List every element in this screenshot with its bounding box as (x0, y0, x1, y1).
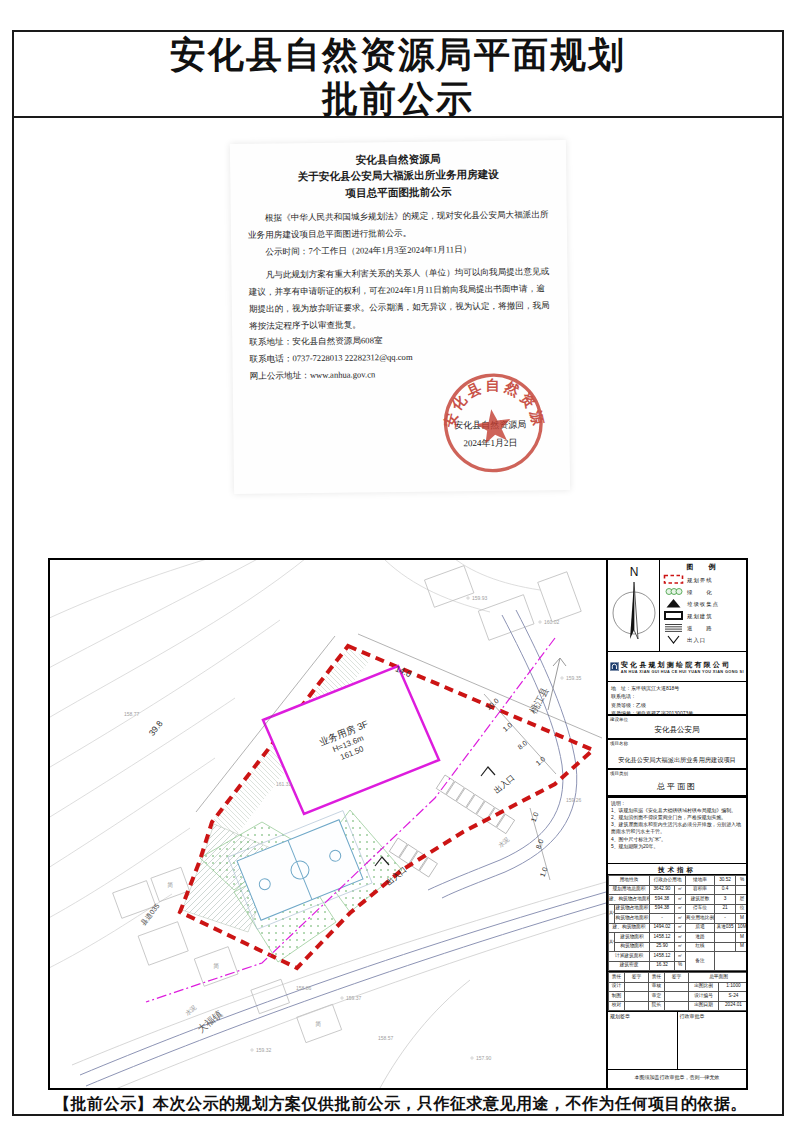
company-logo-icon (610, 657, 619, 676)
tech-cell: 3 (715, 895, 736, 905)
sign-row: 设计 审核 出图比例 1:1000 (609, 982, 747, 992)
page-title-line2: 批前公示 (14, 78, 782, 120)
tech-row: 建、构筑物面积 1494.02 ㎡ 后退 县道035 10M (609, 923, 747, 933)
tech-cell: ㎡ (675, 923, 686, 933)
dim-chain-a3: 8.0 (516, 739, 528, 751)
elev-8: 159.32 (256, 1047, 272, 1053)
tech-cell: M (736, 914, 747, 924)
legend-label-boundary: 规划界线 (687, 577, 713, 584)
tech-cell: M (736, 933, 747, 943)
approval-stamp-box: 行政审批章 (677, 1012, 747, 1069)
shed-2: 简 (213, 963, 219, 969)
elev-5: 159.37 (346, 995, 362, 1001)
owner-value: 安化县公安局 (608, 725, 746, 735)
legend-item-entrance: 出入口 (663, 634, 743, 646)
dim-chain-a2: 1.0 (501, 721, 513, 733)
company-pinyin: AN HUA XIAN GUI HUA CE HUI YUAN YOU XIAN… (621, 670, 744, 674)
type-value: 总平面图 (608, 781, 746, 792)
tech-cell: 30.52 (715, 876, 736, 886)
owner-block: 建设单位 安化县公安局 (608, 716, 746, 740)
entrance-label-1: 出入口 (492, 773, 516, 795)
public-notice-page: { "page": { "title_line1": "安化县自然资源局平面规划… (0, 0, 800, 1131)
sign-cell: 责任 (649, 973, 665, 983)
sign-cell: 责任 (609, 973, 625, 983)
notice-para1: 根据《中华人民共和国城乡规划法》的规定，现对安化县公安局大福派出所业务用房建设项… (248, 206, 550, 243)
site-plan-drawing: 业务用房 3F H=13.6m 161.50 39.8 14.0 10.0 1.… (50, 560, 606, 1088)
page-title-line1: 安化县自然资源局平面规划 (14, 34, 782, 76)
notice-para3: 凡与此规划方案有重大利害关系的关系人（单位）均可以向我局提出意见或建议，并享有申… (248, 264, 551, 335)
sign-row: 校对 院长 出图日期 2024.01 (609, 1001, 747, 1011)
sign-cell (625, 992, 649, 1002)
tech-cell: 商业用地比例 (686, 914, 715, 924)
notice-header3: 项目总平面图批前公示 (247, 183, 549, 203)
tech-cell: 构筑物占地面积 (615, 914, 650, 924)
sign-cell (665, 992, 689, 1002)
tech-row: 计算建筑面积 1458.12 ㎡ 备注 (609, 952, 747, 962)
tech-row: 规划用地总面积 3642.90 ㎡ 容积率 0.4 (609, 885, 747, 895)
entrance-symbol-icon (663, 631, 687, 649)
tech-cell: 1494.02 (650, 923, 675, 933)
tech-cell: ㎡ (675, 895, 686, 905)
sign-cell: 2024.01 (719, 1001, 747, 1011)
elev-4: 158.77 (124, 711, 140, 717)
tech-cell: 建、构筑物面积 (609, 923, 650, 933)
tech-cell: 0.4 (715, 885, 736, 895)
tech-cell: 计算建筑面积 (609, 952, 650, 962)
company-name: 安化县规划测绘院有限公司 (621, 660, 744, 670)
dim-39-8: 39.8 (147, 718, 165, 737)
tech-cell (715, 933, 736, 943)
tech-cell: 绿地率 (686, 876, 715, 886)
sign-cell: 审核 (649, 982, 665, 992)
official-seal-icon: 安化县自然资源局 (433, 362, 554, 483)
tech-indicators-table: 用地性质 行政办公用地 绿地率 30.52 % 规划用地总面积 3642.90 … (608, 875, 746, 971)
tech-cell: 构筑物面积 (615, 942, 650, 952)
shed-3: 简 (315, 1021, 321, 1027)
project-value: 安化县公安局大福派出所业务用房建设项目 (608, 756, 746, 765)
tech-row: 用地性质 行政办公用地 绿地率 30.52 % (609, 876, 747, 886)
sign-cell: 签字 (625, 973, 649, 983)
tech-cell: 位 (736, 904, 747, 914)
tech-cell (736, 885, 747, 895)
tech-cell: M (736, 942, 747, 952)
legend-label-entrance: 出入口 (687, 637, 706, 644)
tech-cell: % (736, 876, 747, 886)
tech-cell: 594.38 (650, 895, 675, 905)
legend-label-trash: 垃圾收集点 (687, 601, 719, 608)
tech-cell-remark (715, 952, 747, 971)
tech-row: 建、构筑物占地面积 594.38 ㎡ 建筑层数 3 层 (609, 895, 747, 905)
sign-cell: 校对 (609, 1001, 625, 1011)
type-label: 项目类别 (610, 771, 628, 776)
tech-cell: ㎡ (675, 914, 686, 924)
tech-row: 其中 建筑物面积 1458.12 ㎡ 道路 M (609, 933, 747, 943)
tech-cell: - (650, 914, 675, 924)
sign-cell: 出图日期 (689, 1001, 719, 1011)
tech-cell: 建、构筑物占地面积 (609, 895, 650, 905)
tech-cell: 25.90 (650, 942, 675, 952)
elev-1: 159.93 (472, 595, 488, 601)
sign-cell: 出图比例 (689, 982, 719, 992)
tech-indicators-title: 技术指标 (608, 864, 746, 875)
tech-cell: 备注 (686, 952, 715, 971)
note-3: 3、建筑屋面雨水和室内生活污水必须分开排放，分别进入地面雨水管和污水主干管。 (611, 821, 743, 835)
note-4: 4、图中尺寸标注为“米”。 (611, 836, 743, 843)
project-block: 项目名称 安化县公安局大福派出所业务用房建设项目 (608, 740, 746, 770)
page-title: 安化县自然资源局平面规划 批前公示 (14, 32, 782, 118)
elev-6: 158.57 (378, 1035, 394, 1041)
planning-stamp-label: 规划签章 (610, 1013, 630, 1019)
panel-footnote: 本图须加盖行政审批章，否则一律无效 (608, 1069, 746, 1083)
company-text: 安化县规划测绘院有限公司 AN HUA XIAN GUI HUA CE HUI … (621, 660, 744, 674)
tech-cell: 1458.12 (650, 933, 675, 943)
elev-9: 158.86 (296, 985, 312, 991)
planning-stamp-box: 规划签章 (608, 1012, 677, 1069)
sign-cell (625, 1001, 649, 1011)
legend-label-building: 规划建筑 (687, 613, 713, 620)
tech-cell: % (675, 961, 686, 971)
tech-cell: 红线 (686, 942, 715, 952)
company-grade: 资质等级：乙级 (611, 701, 743, 709)
sign-cell: 1:1000 (719, 982, 747, 992)
company-info: 地 址：东坪镇滨江大道818号 联系电话： 资质等级：乙级 资质编号：湘自资规乙… (608, 682, 746, 716)
tech-cell: 层 (736, 895, 747, 905)
tech-cell: 停车位 (686, 904, 715, 914)
tech-row: 构筑物占地面积 - ㎡ 商业用地比例 - M (609, 914, 747, 924)
sign-row: 责任 签字 责任 签字 总平面图 (609, 973, 747, 983)
company-address: 地 址：东坪镇滨江大道818号 (611, 684, 743, 692)
tech-cell: 1458.12 (650, 952, 675, 962)
tech-row: 构筑物面积 25.90 ㎡ 红线 M (609, 942, 747, 952)
tech-cell: 规划用地总面积 (609, 885, 650, 895)
title-block-panel: N 图 例 规划界线 绿 化 (606, 560, 746, 1088)
legend-label-road: 道 路 (687, 625, 713, 632)
sign-cell: 审定 (649, 992, 665, 1002)
entrance-arrow-icon (481, 767, 495, 776)
elev-7: 157.90 (476, 1055, 492, 1061)
sign-cell (625, 982, 649, 992)
tech-cell: 后退 (686, 923, 715, 933)
approval-stamp-label: 行政审批章 (680, 1013, 705, 1019)
elev-10: 161.31 (276, 781, 292, 787)
tech-cell: 道路 (686, 933, 715, 943)
tech-cell: 建筑物面积 (615, 933, 650, 943)
tech-cell (715, 942, 736, 952)
elev-2: 159.35 (566, 675, 582, 681)
elev-0: 160.02 (544, 619, 560, 625)
tech-cell: 建筑层数 (686, 895, 715, 905)
road-label-xiandao035: 县道035 (139, 902, 160, 927)
sign-cell: 制图 (609, 992, 625, 1002)
elev-3: 159.26 (566, 797, 582, 803)
signature-table: 责任 签字 责任 签字 总平面图 设计 审核 出图比例 1:1000 制图 (608, 971, 746, 1011)
sign-cell (665, 982, 689, 992)
tech-cell: 建筑物占地面积 (615, 904, 650, 914)
site-plan-sheet: 业务用房 3F H=13.6m 161.50 39.8 14.0 10.0 1.… (48, 558, 748, 1090)
notice-sign-area: 安化县自然资源局 2024年1月2日 安化县自然资源局 (250, 381, 553, 469)
legend-label-green: 绿 化 (687, 589, 713, 596)
panel-spacer (608, 1083, 746, 1088)
legend: 图 例 规划界线 绿 化 垃圾收集点 (660, 560, 746, 651)
road-label-dafuzhen: 大福镇 (195, 1008, 224, 1035)
sign-cell: S-24 (719, 992, 747, 1002)
sign-cell: 院长 (649, 1001, 665, 1011)
notice-para2: 公示时间：7个工作日（2024年1月3至2024年1月11日） (248, 240, 550, 260)
owner-label: 建设单位 (610, 717, 628, 722)
company-phone: 联系电话： (611, 692, 743, 700)
sign-cell: 签字 (665, 973, 689, 983)
tech-cell: ㎡ (675, 933, 686, 943)
tech-cell: 容积率 (686, 885, 715, 895)
scanned-notice: 安化县自然资源局 关于安化县公安局大福派出所业务用房建设 项目总平面图批前公示 … (230, 140, 570, 494)
north-arrow-icon: N (610, 563, 658, 649)
tech-cell: ㎡ (675, 904, 686, 914)
tech-cell: 16.32 (650, 961, 675, 971)
dim-chain-b2: 8.0 (535, 838, 545, 850)
tech-cell: 21 (715, 904, 736, 914)
dim-chain-b3: 1.0 (539, 866, 549, 878)
project-label: 项目名称 (610, 741, 628, 746)
note-2: 2、规划沿街面不得设置商业门台，严格按规划实施。 (611, 814, 743, 821)
tech-cell: 县道035 (715, 923, 736, 933)
type-block: 项目类别 总平面图 (608, 770, 746, 796)
tech-cell: - (715, 914, 736, 924)
sign-cell: 设计 (609, 982, 625, 992)
tech-cell: 用地性质 (609, 876, 650, 886)
existing-buildings (113, 566, 582, 1043)
tech-cell: ㎡ (675, 942, 686, 952)
company-banner: 安化县规划测绘院有限公司 AN HUA XIAN GUI HUA CE HUI … (608, 652, 746, 682)
dim-chain-a4: 1.0 (534, 755, 546, 767)
tech-cell: 3642.90 (650, 885, 675, 895)
notes-block: 说明： 1、该规划依据《安化县大福镇镇域村镇布局规划》编制。 2、规划沿街面不得… (608, 796, 746, 864)
note-1: 1、该规划依据《安化县大福镇镇域村镇布局规划》编制。 (611, 807, 743, 814)
tech-cell: 建筑密度 (609, 961, 650, 971)
north-arrow: N (608, 560, 660, 651)
shed-1: 简 (167, 882, 173, 888)
notes-title: 说明： (611, 800, 743, 807)
footer-disclaimer: 【批前公示】本次公示的规划方案仅供批前公示，只作征求意见用途，不作为任何项目的依… (14, 1094, 782, 1116)
north-and-legend: N 图 例 规划界线 绿 化 (608, 560, 746, 652)
cement-label-1: 水泥 (497, 836, 511, 850)
tech-cell: ㎡ (675, 952, 686, 962)
north-label: N (629, 565, 638, 579)
tech-cell: ㎡ (675, 885, 686, 895)
sign-row: 制图 审定 设计编号 S-24 (609, 992, 747, 1002)
sign-cell: 设计编号 (689, 992, 719, 1002)
sign-cell (665, 1001, 689, 1011)
tech-cell: 594.38 (650, 904, 675, 914)
tech-cell: 行政办公用地 (650, 876, 686, 886)
entrance-labels: 出入口 出入口 (375, 767, 516, 887)
cement-label-2: 水泥 (184, 1004, 198, 1018)
tech-row: 其中 建筑物占地面积 594.38 ㎡ 停车位 21 位 (609, 904, 747, 914)
stamp-boxes: 规划签章 行政审批章 (608, 1011, 746, 1069)
note-5: 5、规划期限为20年。 (611, 843, 743, 850)
sign-cell: 总平面图 (689, 973, 747, 983)
tech-cell: 10M (736, 923, 747, 933)
